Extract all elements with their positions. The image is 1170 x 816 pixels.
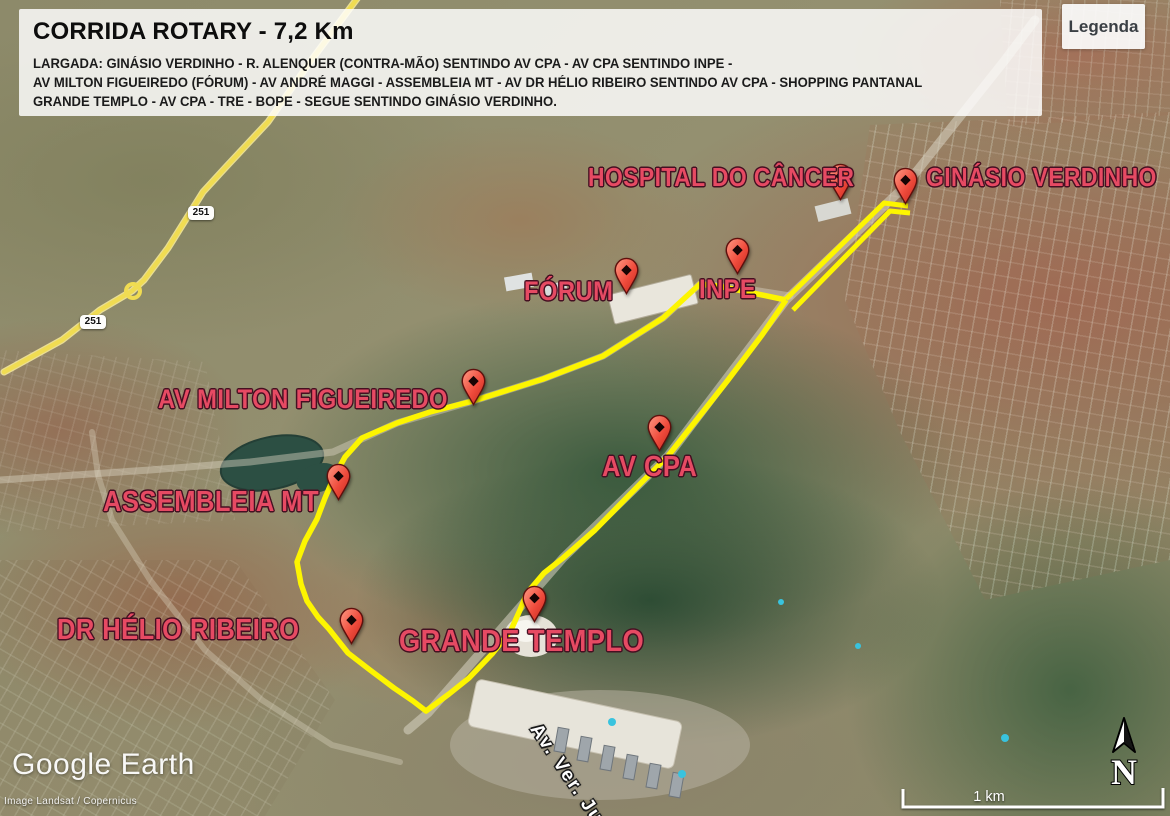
route-description-line-3: GRANDE TEMPLO - AV CPA - TRE - BOPE - SE… — [33, 92, 998, 111]
route-info-panel: CORRIDA ROTARY - 7,2 Km LARGADA: GINÁSIO… — [19, 9, 1042, 116]
road-shield-251: 251 — [188, 206, 214, 220]
pin-label-forum: FÓRUM — [524, 276, 613, 307]
north-arrow: N — [1104, 716, 1144, 788]
pin-label-ginasio-verdinho: GINÁSIO VERDINHO — [926, 162, 1157, 193]
map-pin-forum[interactable] — [613, 257, 640, 295]
pin-label-dr-helio-ribeiro: DR HÉLIO RIBEIRO — [57, 614, 299, 647]
pin-label-assembleia-mt: ASSEMBLEIA MT — [103, 486, 319, 519]
google-earth-watermark: Google Earth — [12, 748, 195, 782]
route-description-line-1: LARGADA: GINÁSIO VERDINHO - R. ALENQUER … — [33, 54, 998, 73]
map-pin-grande-templo[interactable] — [521, 585, 548, 623]
map-pin-av-milton-figueiredo[interactable] — [460, 368, 487, 406]
pin-label-av-cpa: AV CPA — [602, 451, 697, 484]
pin-label-inpe: INPE — [699, 274, 756, 305]
pin-label-hospital-do-cancer: HOSPITAL DO CÂNCER — [588, 162, 854, 193]
route-polyline — [793, 211, 910, 310]
map-pin-ginasio-verdinho[interactable] — [892, 167, 919, 205]
road-shield-251: 251 — [80, 315, 106, 329]
route-polyline — [786, 203, 908, 299]
google-earth-map-view[interactable]: HOSPITAL DO CÂNCERGINÁSIO VERDINHOFÓRUMI… — [0, 0, 1170, 816]
imagery-attribution: Image Landsat / Copernicus — [4, 796, 137, 807]
page-title: CORRIDA ROTARY - 7,2 Km — [33, 18, 1028, 46]
map-pin-assembleia-mt[interactable] — [325, 463, 352, 501]
map-pin-inpe[interactable] — [724, 237, 751, 275]
route-description-line-2: AV MILTON FIGUEIREDO (FÓRUM) - AV ANDRÉ … — [33, 73, 998, 92]
map-pin-av-cpa[interactable] — [646, 414, 673, 452]
scale-bar-label: 1 km — [958, 789, 1020, 805]
svg-text:N: N — [1111, 752, 1137, 788]
pin-label-av-milton-figueiredo: AV MILTON FIGUEIREDO — [158, 384, 448, 415]
legend-button[interactable]: Legenda — [1062, 4, 1145, 49]
pin-label-grande-templo: GRANDE TEMPLO — [399, 623, 644, 659]
map-pin-dr-helio-ribeiro[interactable] — [338, 607, 365, 645]
